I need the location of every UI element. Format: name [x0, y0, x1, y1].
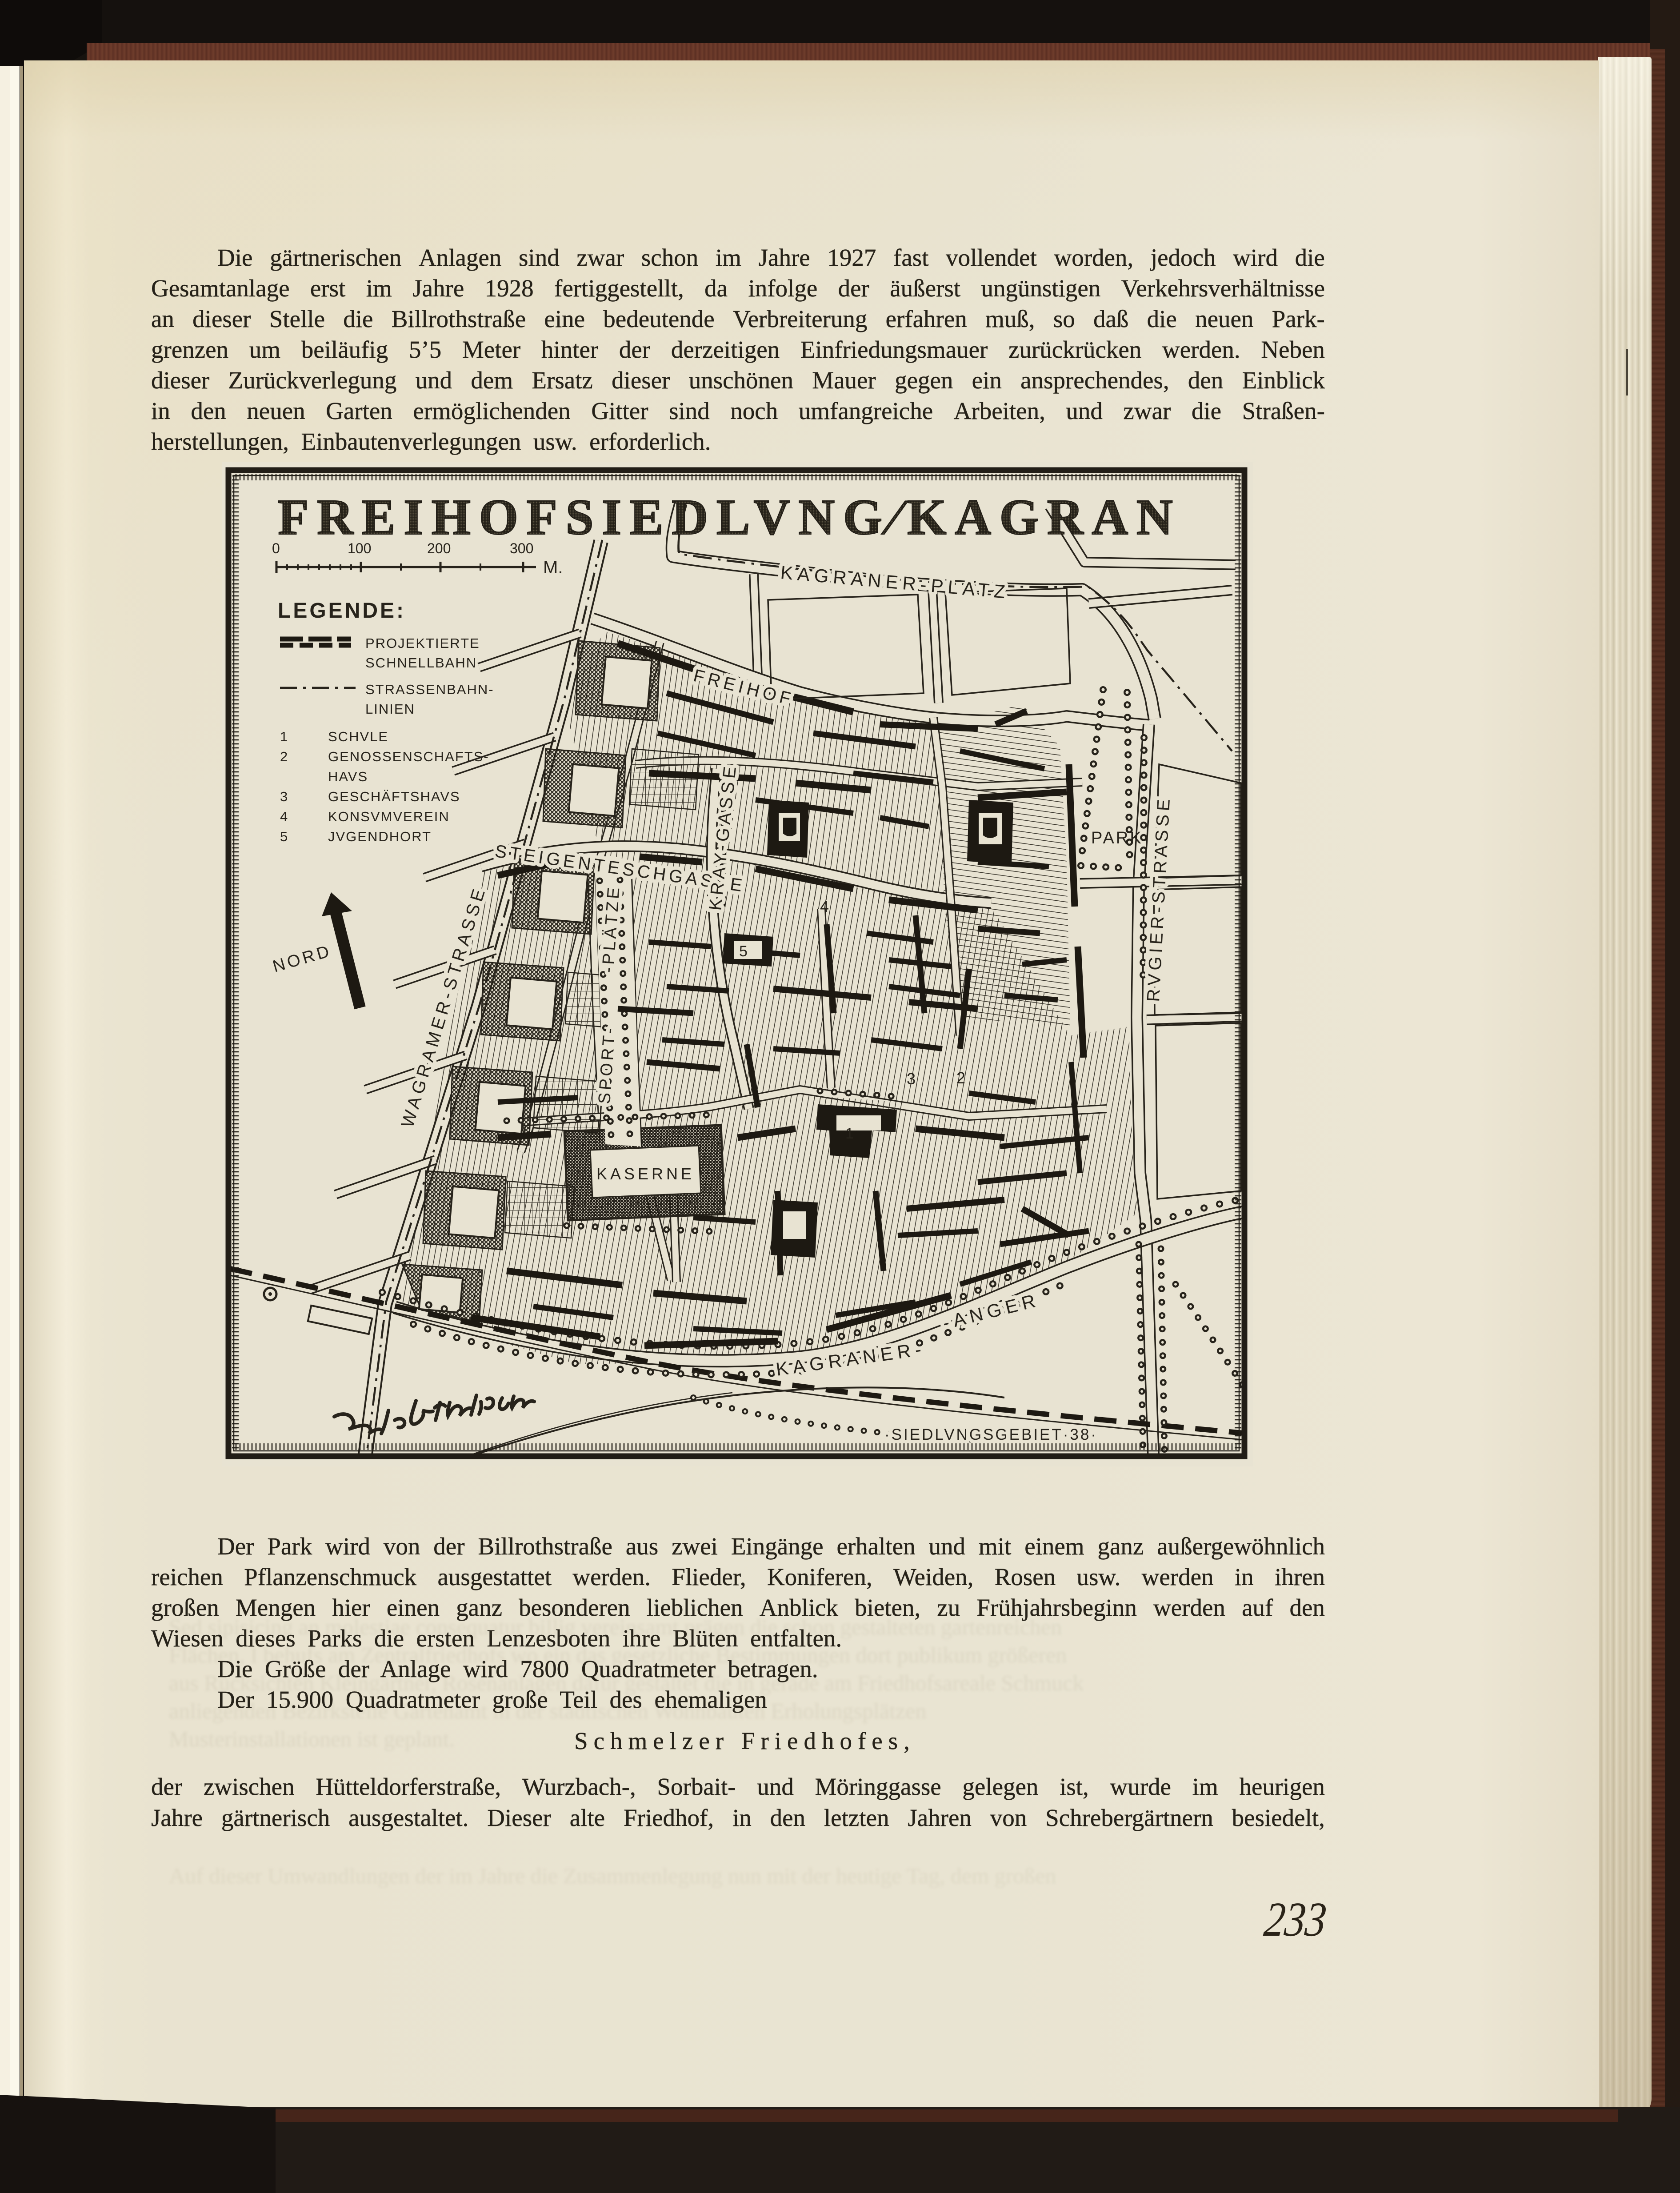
svg-text:SCHVLE: SCHVLE [328, 729, 388, 744]
svg-text:·SIEDLVNGSGEBIET·38·: ·SIEDLVNGSGEBIET·38· [884, 1426, 1098, 1443]
svg-text:JVGENDHORT: JVGENDHORT [328, 829, 432, 844]
svg-text:3: 3 [907, 1070, 916, 1088]
svg-text:4: 4 [280, 809, 288, 824]
svg-text:3: 3 [280, 789, 288, 804]
svg-text:LINIEN: LINIEN [365, 701, 415, 717]
svg-text:STRASSENBAHN-: STRASSENBAHN- [365, 682, 494, 697]
svg-text:LEGENDE:: LEGENDE: [278, 599, 406, 623]
svg-text:1: 1 [280, 729, 288, 744]
svg-text:FREIHOFSIEDLVNG∕KAGRAN: FREIHOFSIEDLVNG∕KAGRAN [278, 489, 1176, 545]
svg-text:GESCHÄFTSHAVS: GESCHÄFTSHAVS [328, 789, 460, 804]
svg-text:GENOSSENSCHAFTS-: GENOSSENSCHAFTS- [328, 749, 489, 764]
svg-text:5: 5 [739, 943, 748, 960]
svg-text:5: 5 [280, 829, 288, 844]
svg-text:1: 1 [845, 1125, 854, 1142]
svg-text:KONSVMVEREIN: KONSVMVEREIN [328, 809, 450, 824]
svg-text:KASERNE: KASERNE [596, 1165, 695, 1183]
svg-text:HAVS: HAVS [328, 769, 368, 784]
svg-text:4: 4 [820, 897, 829, 915]
svg-text:2: 2 [280, 749, 288, 764]
svg-text:M.: M. [543, 558, 563, 577]
svg-text:2: 2 [956, 1069, 965, 1087]
svg-text:SCHNELLBAHN: SCHNELLBAHN [365, 655, 477, 671]
svg-text:PROJEKTIERTE: PROJEKTIERTE [365, 635, 480, 651]
svg-text:PARK: PARK [1091, 829, 1143, 847]
